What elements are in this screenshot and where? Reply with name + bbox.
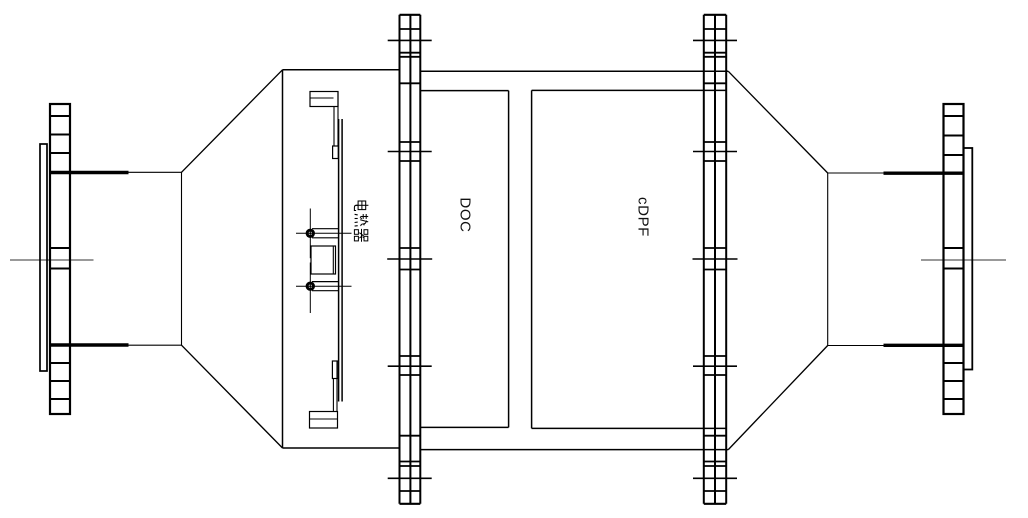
svg-text:DOC: DOC	[456, 197, 473, 232]
svg-text:cDPF: cDPF	[635, 197, 652, 237]
